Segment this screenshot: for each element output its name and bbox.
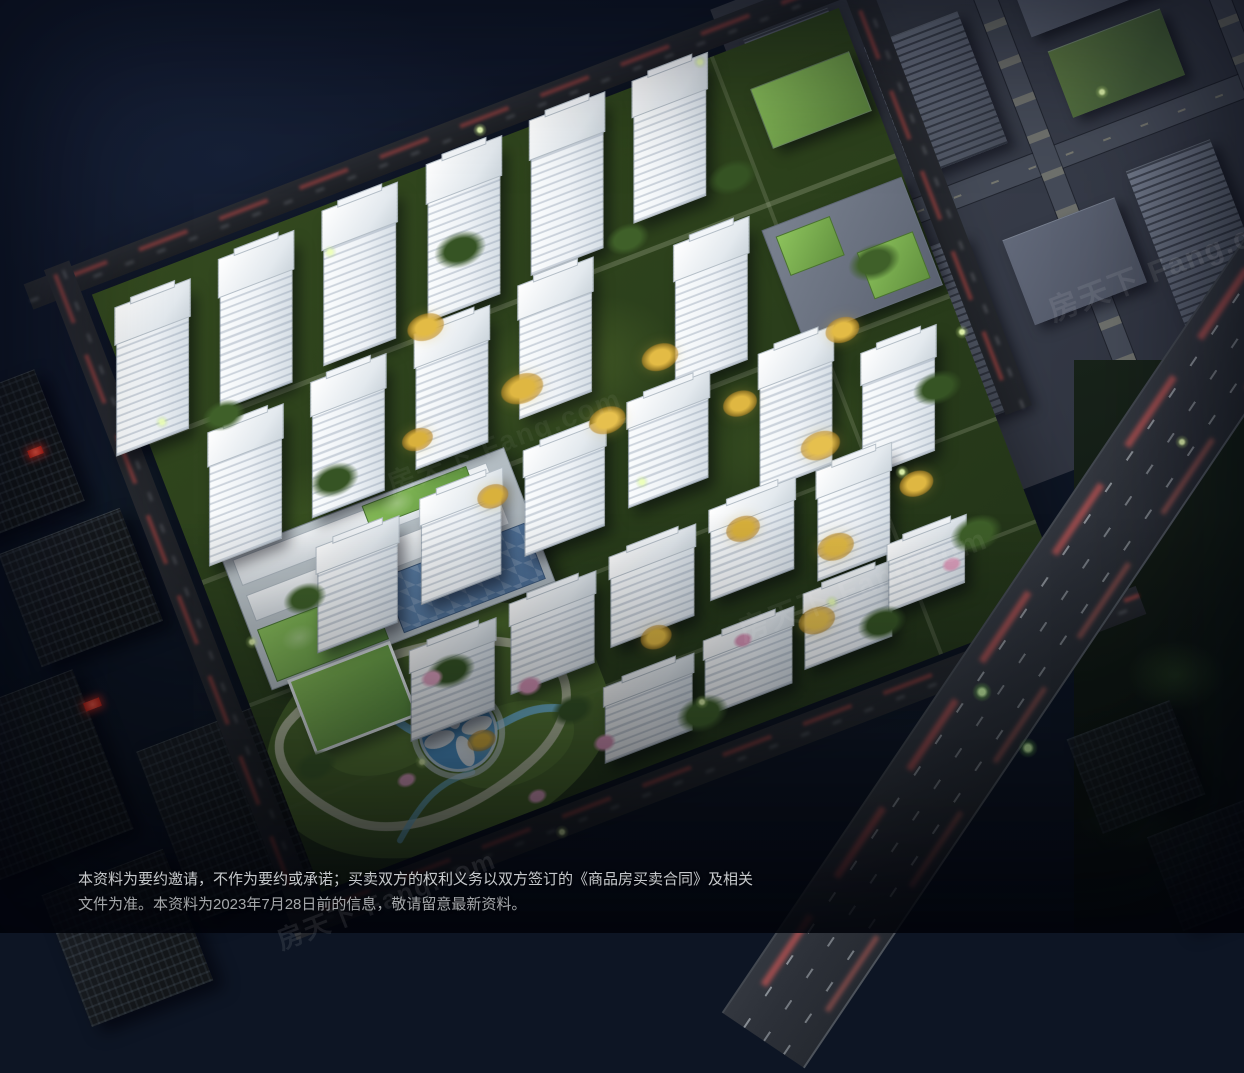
green-roof-patch	[776, 216, 845, 276]
dark-building	[1067, 700, 1206, 834]
green-roof-patch	[857, 231, 931, 299]
disclaimer: 本资料为要约邀请，不作为要约或承诺；买卖双方的权利义务以双方签订的《商品房买卖合…	[78, 867, 758, 917]
residential-tower	[531, 98, 604, 276]
city-building-green-roof	[1048, 9, 1185, 118]
residential-tower	[116, 285, 189, 456]
residential-tower	[633, 59, 706, 224]
residential-tower	[428, 142, 501, 322]
residential-tower	[323, 189, 396, 367]
dark-building	[1147, 794, 1244, 931]
disclaimer-line-2: 文件为准。本资料为2023年7月28日前的信息，敬请留意最新资料。	[78, 892, 758, 917]
disclaimer-line-1: 本资料为要约邀请，不作为要约或承诺；买卖双方的权利义务以双方签订的《商品房买卖合…	[78, 867, 758, 892]
dark-buildings-bottom-right	[1041, 649, 1244, 971]
aerial-night-render: { "scene": { "description": "住宅小区整体鸟瞰夜景效…	[0, 0, 1244, 933]
dark-building	[0, 369, 85, 544]
residential-tower	[675, 223, 748, 388]
residential-tower	[312, 360, 385, 519]
dark-building	[0, 508, 163, 668]
residential-tower	[220, 237, 293, 411]
